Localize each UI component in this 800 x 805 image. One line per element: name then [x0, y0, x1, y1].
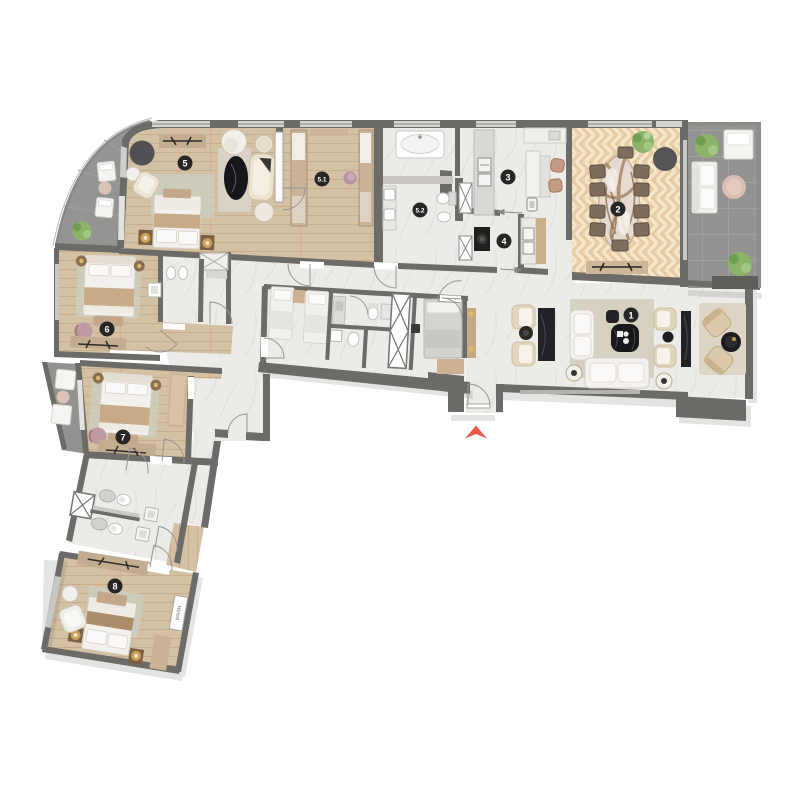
svg-text:5: 5	[182, 159, 187, 169]
svg-text:7: 7	[120, 433, 125, 443]
svg-text:3: 3	[505, 173, 510, 183]
svg-text:5.2: 5.2	[415, 208, 424, 215]
svg-text:2: 2	[615, 205, 620, 215]
svg-text:4: 4	[501, 237, 506, 247]
svg-text:1: 1	[628, 311, 633, 321]
svg-text:8: 8	[112, 582, 117, 592]
svg-text:6: 6	[104, 325, 109, 335]
svg-text:5.1: 5.1	[317, 177, 326, 184]
